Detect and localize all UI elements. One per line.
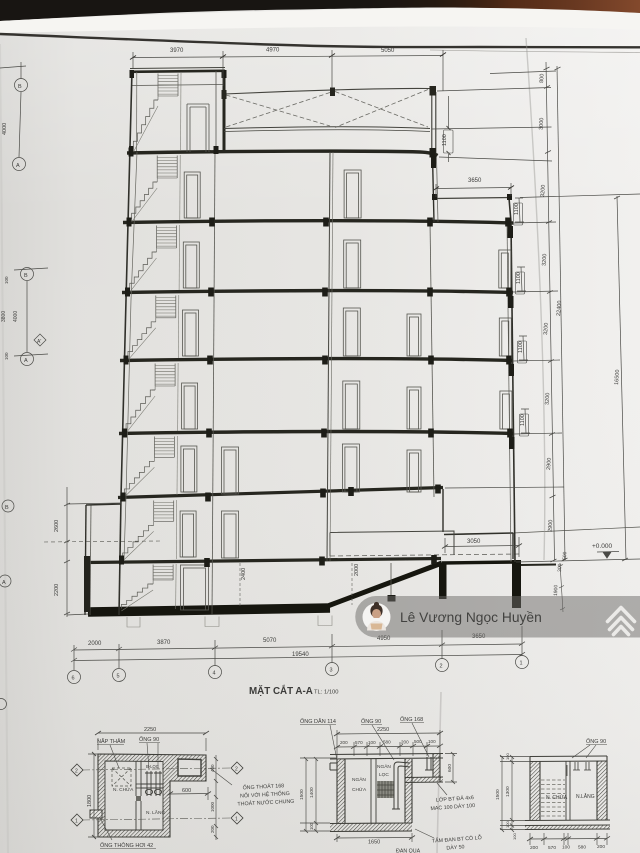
svg-text:ĐAN QUA: ĐAN QUA — [396, 849, 421, 853]
svg-text:CHỨA: CHỨA — [352, 786, 367, 793]
svg-text:100: 100 — [4, 276, 9, 284]
svg-text:N.LẮNG: N.LẮNG — [576, 792, 595, 800]
svg-text:3200: 3200 — [543, 323, 550, 336]
svg-text:2600: 2600 — [54, 520, 60, 532]
svg-text:100: 100 — [428, 739, 436, 744]
svg-text:3050: 3050 — [467, 539, 481, 545]
svg-text:800: 800 — [539, 74, 546, 84]
svg-text:500: 500 — [562, 551, 568, 560]
svg-text:ỐNG DẪN 114: ỐNG DẪN 114 — [300, 718, 336, 725]
svg-text:1500: 1500 — [495, 789, 501, 800]
svg-text:A': A' — [37, 339, 41, 345]
svg-text:100: 100 — [562, 845, 570, 851]
svg-text:3800: 3800 — [1, 311, 7, 322]
svg-text:2900: 2900 — [546, 458, 553, 471]
svg-text:2250: 2250 — [377, 727, 389, 733]
svg-text:600: 600 — [182, 788, 191, 794]
svg-text:200: 200 — [210, 825, 215, 833]
svg-text:1: 1 — [520, 661, 523, 667]
svg-text:LỌC: LỌC — [379, 772, 389, 778]
svg-text:5070: 5070 — [263, 638, 277, 644]
svg-text:1800: 1800 — [87, 795, 93, 807]
svg-text:1100: 1100 — [518, 341, 524, 353]
svg-text:1100: 1100 — [516, 272, 522, 284]
svg-text:B: B — [18, 84, 22, 90]
svg-text:3200: 3200 — [542, 254, 549, 267]
svg-text:N. CHỨA: N. CHỨA — [113, 786, 134, 793]
svg-text:2900: 2900 — [548, 520, 555, 533]
svg-text:5050: 5050 — [381, 48, 395, 54]
svg-text:100: 100 — [505, 753, 510, 760]
svg-text:ỐNG THÔNG HƠI 42: ỐNG THÔNG HƠI 42 — [100, 842, 153, 849]
svg-text:DÀY 50: DÀY 50 — [446, 843, 465, 851]
svg-text:4000: 4000 — [13, 311, 19, 322]
svg-text:200: 200 — [401, 739, 409, 744]
svg-text:500: 500 — [414, 739, 422, 744]
svg-text:1400: 1400 — [309, 787, 315, 798]
svg-text:200: 200 — [340, 740, 348, 745]
svg-text:B-LỌC: B-LỌC — [146, 764, 159, 769]
svg-text:1300: 1300 — [505, 786, 511, 797]
svg-text:4970: 4970 — [266, 48, 280, 54]
svg-text:1000: 1000 — [210, 801, 215, 812]
svg-text:3000: 3000 — [539, 118, 546, 131]
svg-text:2250: 2250 — [144, 727, 156, 733]
svg-text:600: 600 — [447, 764, 453, 772]
svg-text:ỐNG 90: ỐNG 90 — [139, 736, 159, 743]
svg-text:NẮP THĂM: NẮP THĂM — [97, 737, 126, 745]
svg-text:580: 580 — [578, 844, 586, 850]
svg-text:2400: 2400 — [241, 568, 247, 580]
svg-text:1650: 1650 — [368, 840, 380, 846]
svg-text:3200: 3200 — [545, 393, 552, 406]
svg-text:2: 2 — [75, 769, 78, 775]
svg-text:1900: 1900 — [553, 585, 559, 597]
svg-text:N. CHỨA: N. CHỨA — [546, 794, 568, 801]
svg-text:570: 570 — [355, 740, 363, 745]
svg-text:22400: 22400 — [556, 300, 563, 316]
svg-text:2000: 2000 — [88, 641, 102, 647]
svg-text:4000: 4000 — [2, 123, 8, 135]
svg-text:6: 6 — [72, 676, 75, 682]
svg-text:A: A — [2, 580, 6, 586]
svg-text:ỐNG 90: ỐNG 90 — [586, 738, 606, 745]
svg-text:100: 100 — [505, 821, 510, 828]
svg-text:ỐNG 90: ỐNG 90 — [361, 718, 381, 725]
svg-text:MẶT CẮT A-A: MẶT CẮT A-A — [249, 686, 313, 697]
svg-text:3650: 3650 — [468, 178, 482, 184]
svg-text:Lê Vương Ngọc Huyền: Lê Vương Ngọc Huyền — [400, 610, 542, 625]
svg-text:570: 570 — [548, 845, 556, 851]
svg-text:2000: 2000 — [354, 564, 360, 576]
svg-text:NGĂN: NGĂN — [377, 763, 391, 770]
svg-text:100: 100 — [4, 352, 9, 360]
svg-text:100: 100 — [309, 822, 314, 830]
svg-text:2200: 2200 — [54, 584, 60, 596]
svg-text:A: A — [16, 163, 20, 169]
svg-text:B: B — [5, 505, 9, 511]
svg-text:100: 100 — [368, 740, 376, 745]
svg-text:400: 400 — [210, 764, 215, 772]
svg-text:3970: 3970 — [170, 48, 184, 54]
svg-text:3200: 3200 — [540, 185, 547, 198]
svg-text:ỐNG 168: ỐNG 168 — [400, 716, 423, 723]
svg-text:1500: 1500 — [299, 789, 305, 800]
svg-text:1100: 1100 — [514, 203, 520, 215]
svg-text:580: 580 — [383, 740, 391, 745]
svg-text:2: 2 — [440, 664, 443, 670]
svg-text:TL: 1/100: TL: 1/100 — [314, 690, 339, 696]
svg-text:B: B — [24, 273, 28, 279]
svg-text:1100: 1100 — [442, 134, 448, 146]
svg-text:NGĂN: NGĂN — [352, 776, 366, 783]
svg-text:3: 3 — [330, 668, 333, 674]
svg-text:3870: 3870 — [157, 640, 171, 646]
svg-text:A: A — [24, 358, 28, 364]
svg-text:1: 1 — [75, 819, 78, 825]
svg-text:200: 200 — [530, 845, 538, 851]
svg-text:1: 1 — [235, 817, 238, 823]
svg-text:2: 2 — [235, 767, 238, 773]
svg-text:5: 5 — [117, 674, 120, 680]
svg-text:100: 100 — [512, 833, 517, 840]
svg-text:1100: 1100 — [520, 414, 526, 426]
svg-text:19540: 19540 — [292, 652, 309, 658]
svg-text:200: 200 — [597, 844, 605, 850]
svg-text:4: 4 — [213, 671, 216, 677]
svg-text:+0.000: +0.000 — [592, 543, 612, 550]
svg-text:16500: 16500 — [614, 369, 621, 385]
